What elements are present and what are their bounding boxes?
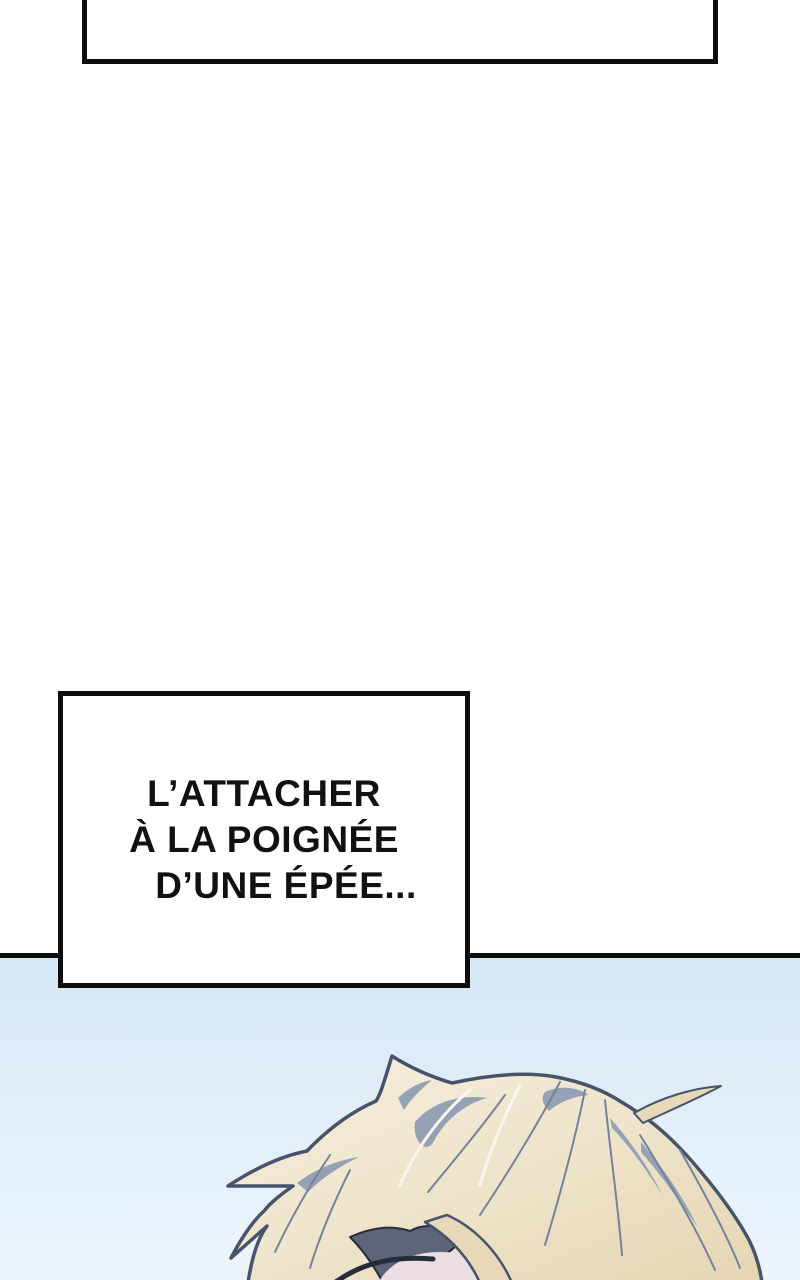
comic-page: L’ATTACHER À LA POIGNÉE D’UNE ÉPÉE...: [0, 0, 800, 1280]
speech-line-3: D’UNE ÉPÉE...: [155, 863, 416, 909]
speech-box: L’ATTACHER À LA POIGNÉE D’UNE ÉPÉE...: [58, 691, 470, 988]
hair-silhouette: [228, 1056, 762, 1280]
speech-line-2: À LA POIGNÉE: [129, 817, 399, 863]
blonde-character-head-illustration: [0, 958, 800, 1280]
speech-line-1: L’ATTACHER: [147, 771, 381, 817]
bottom-illustration-panel: [0, 953, 800, 1280]
antenna-hair-strand: [634, 1086, 721, 1123]
top-panel-box: [82, 0, 718, 64]
